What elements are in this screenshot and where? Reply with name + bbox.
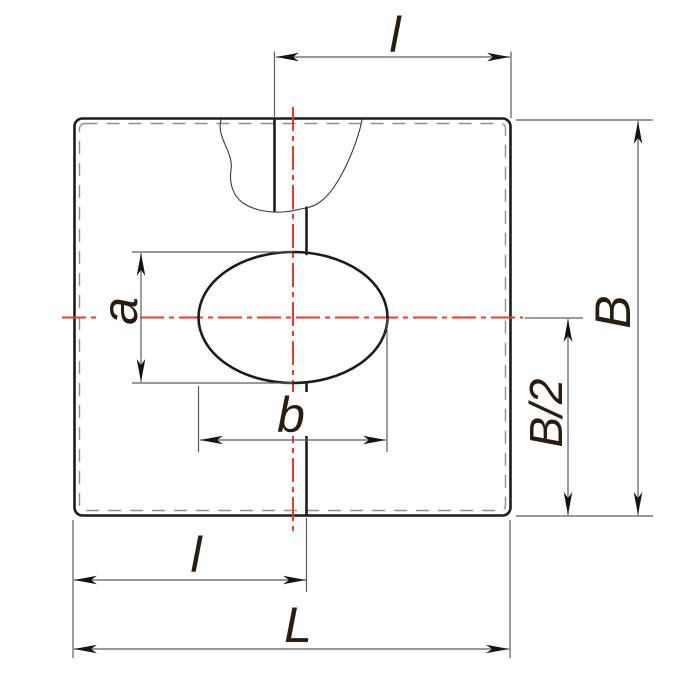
dim-label-a: a	[92, 297, 148, 325]
dim-L: L	[74, 520, 510, 658]
dim-label-top-l: l	[389, 7, 402, 63]
drawing-canvas: l B B/2 a b	[0, 0, 700, 700]
dim-label-L: L	[284, 597, 312, 653]
dim-label-B2: B/2	[520, 378, 572, 447]
dim-label-B: B	[585, 295, 641, 328]
technical-drawing-svg: l B B/2 a b	[0, 0, 700, 700]
dim-label-b: b	[277, 387, 305, 443]
dim-top-l: l	[275, 7, 512, 118]
break-line-right	[306, 120, 362, 209]
dim-label-bottom-l: l	[190, 527, 203, 583]
dim-B2: B/2	[520, 318, 583, 515]
dim-bottom-l: l	[73, 518, 307, 658]
